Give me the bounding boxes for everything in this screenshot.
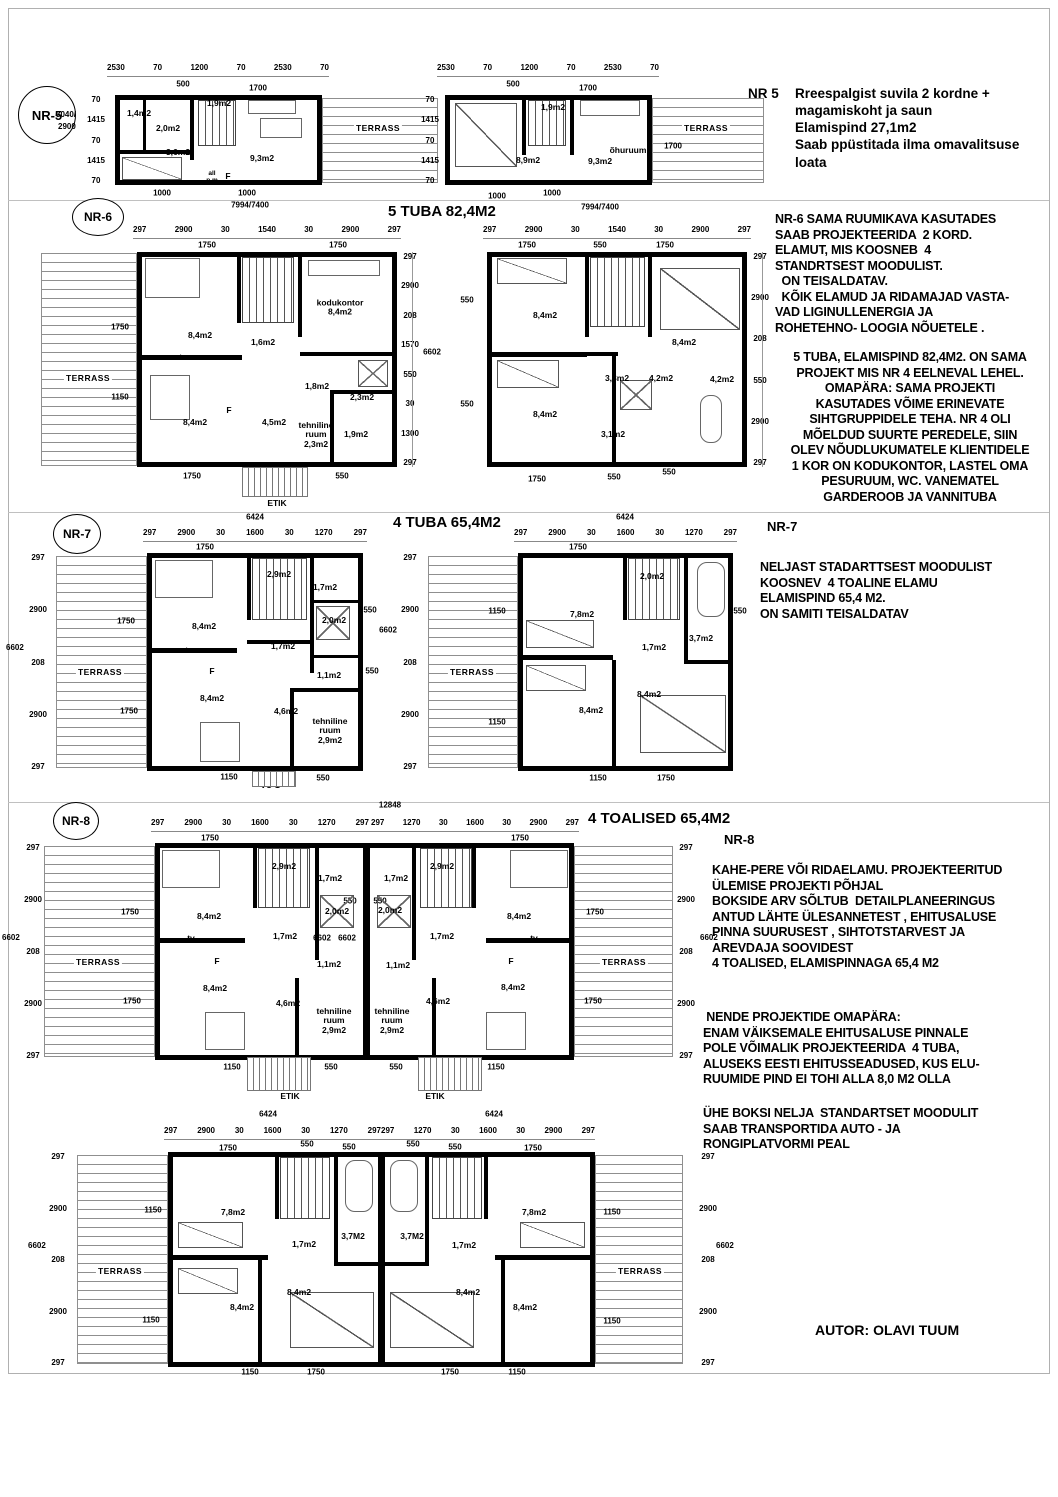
dim-value: 2900 xyxy=(49,1204,67,1213)
dim-value: 208 xyxy=(403,658,416,667)
table-furniture xyxy=(260,118,302,138)
note-line: NELJAST STADARTTSEST MOODULIST xyxy=(760,560,1050,576)
room-label-hall: 1,7m2 xyxy=(273,931,297,941)
note-line: OMAPÄRA: SAMA PROJEKTI xyxy=(770,381,1050,397)
interior-wall xyxy=(334,1262,378,1266)
title-nr7: 4 TUBA 65,4M2 xyxy=(393,514,501,531)
dim-value: 1600 xyxy=(246,528,264,538)
interior-wall xyxy=(612,660,616,766)
dimension-line xyxy=(762,252,763,467)
stairs xyxy=(590,257,645,327)
terrace-label: TERRASS xyxy=(354,123,402,133)
dim-total-left: 2900 xyxy=(58,122,76,131)
room-label-living: 9,3m2 xyxy=(250,153,274,163)
room-label-office: kodukontor8,4m2 xyxy=(317,299,364,318)
interior-wall xyxy=(160,938,245,943)
dim-value: 30 xyxy=(235,1126,244,1136)
table-furniture xyxy=(200,722,240,762)
dim-label: 1750 xyxy=(117,617,135,626)
stairs xyxy=(280,1157,330,1219)
note-line: SAAB TRANSPORTIDA AUTO - JA xyxy=(703,1122,1048,1138)
note-line: 1 KOR ON KODUKONTOR, LASTEL OMA xyxy=(770,459,1050,475)
room-label-shower: 2,0m2 xyxy=(325,906,349,916)
room-label-wc: 1,7m2 xyxy=(313,582,337,592)
dim-value: 208 xyxy=(31,658,44,667)
dim-value: 297 xyxy=(753,252,766,261)
interior-wall xyxy=(623,558,627,620)
terrace-nr8-floor1-left xyxy=(44,846,155,1057)
room-label-bed3: 8,4m2 xyxy=(637,689,661,699)
dim-total-top: 6424 xyxy=(485,1110,503,1119)
shower-box xyxy=(620,380,652,410)
interior-wall xyxy=(142,355,242,360)
dim-label: 1750 xyxy=(518,241,536,250)
dim-label: 1150 xyxy=(144,1206,161,1215)
dim-value: 297 xyxy=(701,1152,714,1161)
dim-label: 1750 xyxy=(121,908,139,917)
room-label-wc: 3,1m2 xyxy=(601,429,625,439)
dim-value: 70 xyxy=(567,63,576,73)
dim-value: 1570 xyxy=(401,340,419,349)
table-furniture xyxy=(150,375,190,420)
note-line: 4 TOALISED, ELAMISPINNAGA 65,4 M2 xyxy=(712,956,1052,972)
bed-furniture xyxy=(640,695,726,753)
title-nr6: 5 TUBA 82,4M2 xyxy=(388,203,496,220)
badge-nr8: NR-8 xyxy=(53,802,99,840)
dim-value: 297 xyxy=(143,528,156,538)
dim-row-top: 2972900301600301270297 xyxy=(514,528,737,538)
room-label-hall: 1,6m2 xyxy=(251,337,275,347)
dim-value: 30 xyxy=(439,818,448,828)
dim-value: 208 xyxy=(403,311,416,320)
note-line: magamiskoht ja saun xyxy=(795,102,1055,119)
dim-value: 30 xyxy=(587,528,596,538)
interior-wall xyxy=(310,600,358,603)
dim-label: 550 xyxy=(335,472,348,481)
room-label-bed3: 8,4m2 xyxy=(513,1302,537,1312)
dim-col-right: 29729002081570550301300297 xyxy=(400,252,420,467)
note-nr5: Rreespalgist suvila 2 kordne +magamiskoh… xyxy=(795,85,1055,171)
interior-wall xyxy=(298,257,302,337)
room-label-bed1: 7,8m2 xyxy=(221,1207,245,1217)
room-label-wc: 1,8m2 xyxy=(305,381,329,391)
dim-value: 2530 xyxy=(604,63,622,73)
dimension-line xyxy=(107,76,329,77)
dim-value: 297 xyxy=(26,1051,39,1060)
dim-value: 70 xyxy=(650,63,659,73)
dim-label: 1750 xyxy=(307,1368,325,1377)
room-label-hall: 1,7m2 xyxy=(642,642,666,652)
dim-value: 30 xyxy=(289,818,298,828)
note-line: ANTUD LÄHTE ÜLESANNETEST , EHITUSALUSE xyxy=(712,910,1052,926)
room-label-stairs: 2,0m2 xyxy=(640,571,664,581)
dim-label: 1750 xyxy=(183,472,201,481)
sofa-furniture xyxy=(580,100,640,116)
room-label-tech: tehnilineruum2,9m2 xyxy=(317,1007,352,1035)
room-label-tv: tv xyxy=(530,933,538,943)
bed-furniture xyxy=(526,665,586,691)
room-label-dining: 4,5m2 xyxy=(262,417,286,427)
note-line: 5 TUBA, ELAMISPIND 82,4M2. ON SAMA xyxy=(770,350,1050,366)
room-label-bed2: 8,4m2 xyxy=(672,337,696,347)
interior-wall xyxy=(152,648,237,653)
dim-value: 550 xyxy=(403,370,416,379)
dim-value: 2530 xyxy=(437,63,455,73)
dim-value: 2900 xyxy=(401,281,419,290)
dim-value: 1270 xyxy=(318,818,336,828)
dim-value: 1300 xyxy=(401,429,419,438)
stairs xyxy=(420,848,472,908)
table-furniture xyxy=(205,1012,245,1050)
dim-value: 297 xyxy=(753,458,766,467)
room-label-shower: 2,0m2 xyxy=(156,123,180,133)
room-label-bath: 3,7M2 xyxy=(400,1231,424,1241)
room-label-bed3: 8,4m2 xyxy=(287,1287,311,1297)
room-label-bath: 1,1m2 xyxy=(317,959,341,969)
dimension-line xyxy=(483,238,751,239)
dim-label: 1150 xyxy=(220,773,237,782)
dim-label: 1750 xyxy=(198,241,216,250)
interior-wall xyxy=(247,558,251,620)
terrace-label: TERRASS xyxy=(616,1266,664,1276)
dim-col-left: 29729002082900297 xyxy=(28,553,48,771)
terrace-label: TERRASS xyxy=(96,1266,144,1276)
note-line: AREVDAJA SOOVIDEST xyxy=(712,941,1052,957)
dim-label: 1700 xyxy=(249,84,267,93)
dim-total-bottom: 7994/7400 xyxy=(581,203,619,212)
room-label-stairs: 2,9m2 xyxy=(430,861,454,871)
interior-wall xyxy=(585,257,589,337)
note-line: VAD LIGINULLENERGIA JA xyxy=(775,305,1050,321)
dim-total: 6602 xyxy=(379,626,397,635)
dim-label: 550 xyxy=(316,774,329,783)
dim-value: 208 xyxy=(701,1255,714,1264)
badge-nr7: NR-7 xyxy=(53,514,101,554)
note-line: ÜHE BOKSI NELJA STANDARTSET MOODULIT xyxy=(703,1106,1048,1122)
dim-label: 1150 xyxy=(223,1063,240,1072)
dim-total-left: 3040/ xyxy=(56,110,76,119)
room-label-bath: 3,7m2 xyxy=(689,633,713,643)
dim-value: 2900 xyxy=(29,605,47,614)
dim-value: 297 xyxy=(679,843,692,852)
desk-furniture xyxy=(308,260,380,276)
note-nr8-1: KAHE-PERE VÕI RIDAELAMU. PROJEKTEERITUDÜ… xyxy=(712,863,1052,972)
dim-value: 1415 xyxy=(87,115,105,124)
dim-total-top: 6424 xyxy=(259,1110,277,1119)
badge-nr7-label: NR-7 xyxy=(63,527,91,541)
dim-value: 2900 xyxy=(197,1126,215,1136)
interior-wall xyxy=(310,655,358,658)
dim-label: 1750 xyxy=(120,707,138,716)
dim-value: 2900 xyxy=(691,225,709,235)
dim-value: 1600 xyxy=(617,528,635,538)
dim-value: 2900 xyxy=(24,895,42,904)
room-label-line: p.m xyxy=(206,177,218,184)
room-label-hall: 1,7m2 xyxy=(271,641,295,651)
room-label-bath: 3,7M2 xyxy=(341,1231,365,1241)
dim-value: 297 xyxy=(371,818,384,828)
terrace-nr7-floor2 xyxy=(428,556,518,768)
bed-furniture xyxy=(178,1268,238,1294)
dim-value: 2900 xyxy=(677,895,695,904)
interior-wall xyxy=(472,848,476,908)
room-label-fridge: F xyxy=(225,171,230,181)
dim-value: 70 xyxy=(92,136,101,145)
interior-wall xyxy=(190,100,194,160)
note-line: OLEV NÕUDLUKUMATELE KLIENTIDELE xyxy=(770,443,1050,459)
dimension-line xyxy=(412,252,413,467)
room-label-kitchen: 8,4m2 xyxy=(183,417,207,427)
dim-label: 1750 xyxy=(441,1368,459,1377)
room-label-storage: 4,6m2 xyxy=(276,998,300,1008)
dim-label: 550 xyxy=(448,1143,461,1152)
dim-value: 30 xyxy=(655,528,664,538)
dim-value: 297 xyxy=(133,225,146,235)
note-nr6-b: 5 TUBA, ELAMISPIND 82,4M2. ON SAMAPROJEK… xyxy=(770,350,1050,505)
room-label-fridge: F xyxy=(508,956,513,966)
dim-value: 2900 xyxy=(29,710,47,719)
note-line: GARDEROOB JA VANNITUBA xyxy=(770,490,1050,506)
dim-value: 2900 xyxy=(184,818,202,828)
note-line: NENDE PROJEKTIDE OMAPÄRA: xyxy=(703,1010,1048,1026)
room-label-etik: ETIK xyxy=(267,498,286,508)
interior-wall xyxy=(237,257,241,323)
room-label-line: 2,9m2 xyxy=(322,1026,346,1035)
dim-value: 30 xyxy=(502,818,511,828)
dim-value: 297 xyxy=(724,528,737,538)
note-line: Saab ppüstitada ilma omavalitsuse xyxy=(795,136,1055,153)
dim-label: 1750 xyxy=(201,834,219,843)
room-label-hall: 1,7m2 xyxy=(452,1240,476,1250)
dim-value: 297 xyxy=(403,458,416,467)
note-line: SAAB PROJEKTEERIDA 2 KORD. xyxy=(775,228,1050,244)
room-label-shower: 2,0m2 xyxy=(322,615,346,625)
dim-value: 70 xyxy=(92,95,101,104)
note-line: loata xyxy=(795,154,1055,171)
terrace-label: TERRASS xyxy=(76,667,124,677)
dim-value: 30 xyxy=(406,399,415,408)
dim-value: 1600 xyxy=(251,818,269,828)
dim-label: 550 xyxy=(607,473,620,482)
dim-label: 1750 xyxy=(196,543,214,552)
room-label-living: 9,3m2 xyxy=(588,156,612,166)
dim-value: 297 xyxy=(151,818,164,828)
dim-row-top: 2972900301600301270297 xyxy=(143,528,367,538)
room-label-bed1: 8,4m2 xyxy=(533,310,557,320)
bed-furniture xyxy=(455,103,517,167)
room-label-kitchen: 8,4m2 xyxy=(203,983,227,993)
sofa-furniture xyxy=(510,850,568,888)
table-furniture xyxy=(486,1012,526,1050)
interior-wall xyxy=(648,257,652,337)
interior-wall xyxy=(290,688,358,692)
dim-value: 297 xyxy=(356,818,369,828)
stairs xyxy=(432,1157,482,1219)
dim-value: 2900 xyxy=(699,1307,717,1316)
room-label-storage: 4,6m2 xyxy=(274,706,298,716)
dim-row-top-left: 2972900301600301270297 xyxy=(151,818,369,828)
dim-value: 297 xyxy=(738,225,751,235)
terrace-label: TERRASS xyxy=(64,373,112,383)
room-label-line: 8,4m2 xyxy=(328,308,352,317)
terrace-nr8-floor2-left xyxy=(77,1155,168,1364)
dim-label: 550 xyxy=(406,1140,419,1149)
room-label-hall: 3,3m2 xyxy=(605,373,629,383)
dim-value: 70 xyxy=(92,176,101,185)
note-line: RONGIPLATVORMI PEAL xyxy=(703,1137,1048,1153)
room-label-sauna: 1,4m2 xyxy=(127,108,151,118)
room-label-bed1: 7,8m2 xyxy=(570,609,594,619)
room-label-laundry: 1,9m2 xyxy=(344,429,368,439)
room-label-fridge: F xyxy=(226,405,231,415)
dim-label: 500 xyxy=(506,80,519,89)
note-nr6-a: NR-6 SAMA RUUMIKAVA KASUTADESSAAB PROJEK… xyxy=(775,212,1050,336)
dim-label: 550 xyxy=(733,607,746,616)
room-label-living: 8,4m2 xyxy=(507,911,531,921)
dim-value: 2900 xyxy=(544,1126,562,1136)
dim-col-right: 29729002085502900297 xyxy=(750,252,770,467)
entry-steps xyxy=(242,467,308,497)
dim-label: 1750 xyxy=(528,475,546,484)
dim-value: 297 xyxy=(51,1152,64,1161)
dim-label: 1000 xyxy=(543,189,561,198)
dim-value: 297 xyxy=(403,762,416,771)
dim-total: 6602 xyxy=(2,933,20,942)
dim-label: 1750 xyxy=(219,1144,237,1153)
dim-value: 2900 xyxy=(175,225,193,235)
dim-label: 550 xyxy=(389,1063,402,1072)
bed-furniture xyxy=(497,258,567,284)
dim-label: 1750 xyxy=(511,834,529,843)
dim-value: 30 xyxy=(571,225,580,235)
interior-wall xyxy=(315,848,319,960)
bed-furniture xyxy=(178,1222,243,1248)
room-label-allpm: allp.m xyxy=(206,170,218,184)
interior-wall xyxy=(523,655,613,660)
room-label-fridge: F xyxy=(209,666,214,676)
dim-label: 550 xyxy=(300,1140,313,1149)
room-label-stairs: 2,9m2 xyxy=(272,861,296,871)
room-label-bath: 1,1m2 xyxy=(317,670,341,680)
dim-label: 1750 xyxy=(586,908,604,917)
dim-label: 550 xyxy=(460,296,473,305)
interior-wall xyxy=(486,938,571,943)
bathtub-furniture xyxy=(700,395,722,443)
note-line: KASUTADES VÕIME ERINEVATE xyxy=(770,397,1050,413)
room-label-etik: ETIK xyxy=(425,1091,444,1101)
dim-label: 1150 xyxy=(241,1368,258,1377)
bed-furniture xyxy=(497,360,559,388)
note-nr5-id: NR 5 xyxy=(748,86,779,101)
dim-value: 297 xyxy=(582,1126,595,1136)
dim-total: 6602 xyxy=(28,1241,46,1250)
interior-wall xyxy=(300,352,392,356)
bed-furniture xyxy=(290,1292,374,1348)
section-divider xyxy=(8,512,1049,513)
room-label-tv: tv xyxy=(179,352,187,362)
dim-value: 1415 xyxy=(421,156,439,165)
room-label-etik: ETIK xyxy=(280,1091,299,1101)
dim-value: 30 xyxy=(654,225,663,235)
interior-wall xyxy=(275,1157,279,1219)
room-label-kitchen: 8,4m2 xyxy=(501,982,525,992)
dim-value: 297 xyxy=(381,1126,394,1136)
author-credit: AUTOR: OLAVI TUUM xyxy=(815,1322,959,1338)
sofa-furniture xyxy=(162,850,220,888)
room-label-bath: 1,1m2 xyxy=(386,960,410,970)
note-line: PINNA SUURUSEST , SIHTOTSTARVEST JA xyxy=(712,925,1052,941)
entry-steps xyxy=(247,1057,311,1091)
interior-wall xyxy=(484,1157,488,1219)
architectural-sheet: { "page": { "author": "AUTOR: OLAVI TUUM… xyxy=(0,0,1058,1497)
interior-wall xyxy=(425,1157,429,1262)
interior-wall xyxy=(522,100,526,155)
note-line: SIHTGRUPPIDELE TEHA. NR 4 OLI xyxy=(770,412,1050,428)
entry-steps xyxy=(418,1057,482,1091)
dim-col-left: 70141570141570 xyxy=(420,95,440,185)
dim-label: 1150 xyxy=(488,607,505,616)
dim-label: 550 xyxy=(365,667,378,676)
dim-total: 6602 xyxy=(716,1241,734,1250)
dim-value: 70 xyxy=(483,63,492,73)
terrace-nr5-floor2 xyxy=(652,98,764,183)
dim-row-top-left: 2972900301600301270297 xyxy=(164,1126,381,1136)
bed-furniture xyxy=(390,1292,474,1348)
interior-wall xyxy=(684,558,688,663)
dim-value: 2900 xyxy=(401,605,419,614)
dim-label: 1150 xyxy=(508,1368,525,1377)
note-line: PESURUUM, WC. VANEMATEL xyxy=(770,474,1050,490)
dimension-line xyxy=(437,76,659,77)
room-label-bed2: 8,4m2 xyxy=(230,1302,254,1312)
dim-value: 70 xyxy=(426,176,435,185)
room-label-bed3: 8,4m2 xyxy=(533,409,557,419)
dim-value: 208 xyxy=(26,947,39,956)
dim-value: 297 xyxy=(31,762,44,771)
room-label-shower: 2,3m2 xyxy=(350,392,374,402)
dim-label: 1750 xyxy=(123,997,141,1006)
note-line: KÕIK ELAMUD JA RIDAMAJAD VASTA- xyxy=(775,290,1050,306)
room-label-bed1: 7,8m2 xyxy=(522,1207,546,1217)
section-divider xyxy=(8,200,1049,201)
note-nr8-3: ÜHE BOKSI NELJA STANDARTSET MOODULITSAAB… xyxy=(703,1106,1048,1153)
dim-label: 550 xyxy=(593,241,606,250)
dim-value: 2900 xyxy=(699,1204,717,1213)
dim-value: 2900 xyxy=(401,710,419,719)
interior-wall xyxy=(612,356,616,462)
note-line: KAHE-PERE VÕI RIDAELAMU. PROJEKTEERITUD xyxy=(712,863,1052,879)
interior-wall xyxy=(501,1260,505,1364)
room-label-wc: 1,7m2 xyxy=(318,873,342,883)
dim-value: 297 xyxy=(354,528,367,538)
bathtub-furniture xyxy=(390,1160,418,1212)
room-label-tech: tehnilineruum2,9m2 xyxy=(313,717,348,745)
interior-wall xyxy=(684,660,728,664)
dim-value: 550 xyxy=(753,376,766,385)
dim-label: 550 xyxy=(460,400,473,409)
room-label-fridge: F xyxy=(214,956,219,966)
dim-total-top: 6424 xyxy=(246,513,264,522)
dim-value: 1540 xyxy=(258,225,276,235)
label-nr7: NR-7 xyxy=(767,519,797,534)
dim-value: 1415 xyxy=(87,156,105,165)
note-line: MÕELDUD SUURTE PEREDELE, SIIN xyxy=(770,428,1050,444)
dim-label: 1000 xyxy=(238,189,256,198)
dim-label: 1150 xyxy=(603,1208,620,1217)
dimension-line xyxy=(514,541,737,542)
room-label-tv: tv xyxy=(187,933,195,943)
dim-value: 297 xyxy=(164,1126,177,1136)
